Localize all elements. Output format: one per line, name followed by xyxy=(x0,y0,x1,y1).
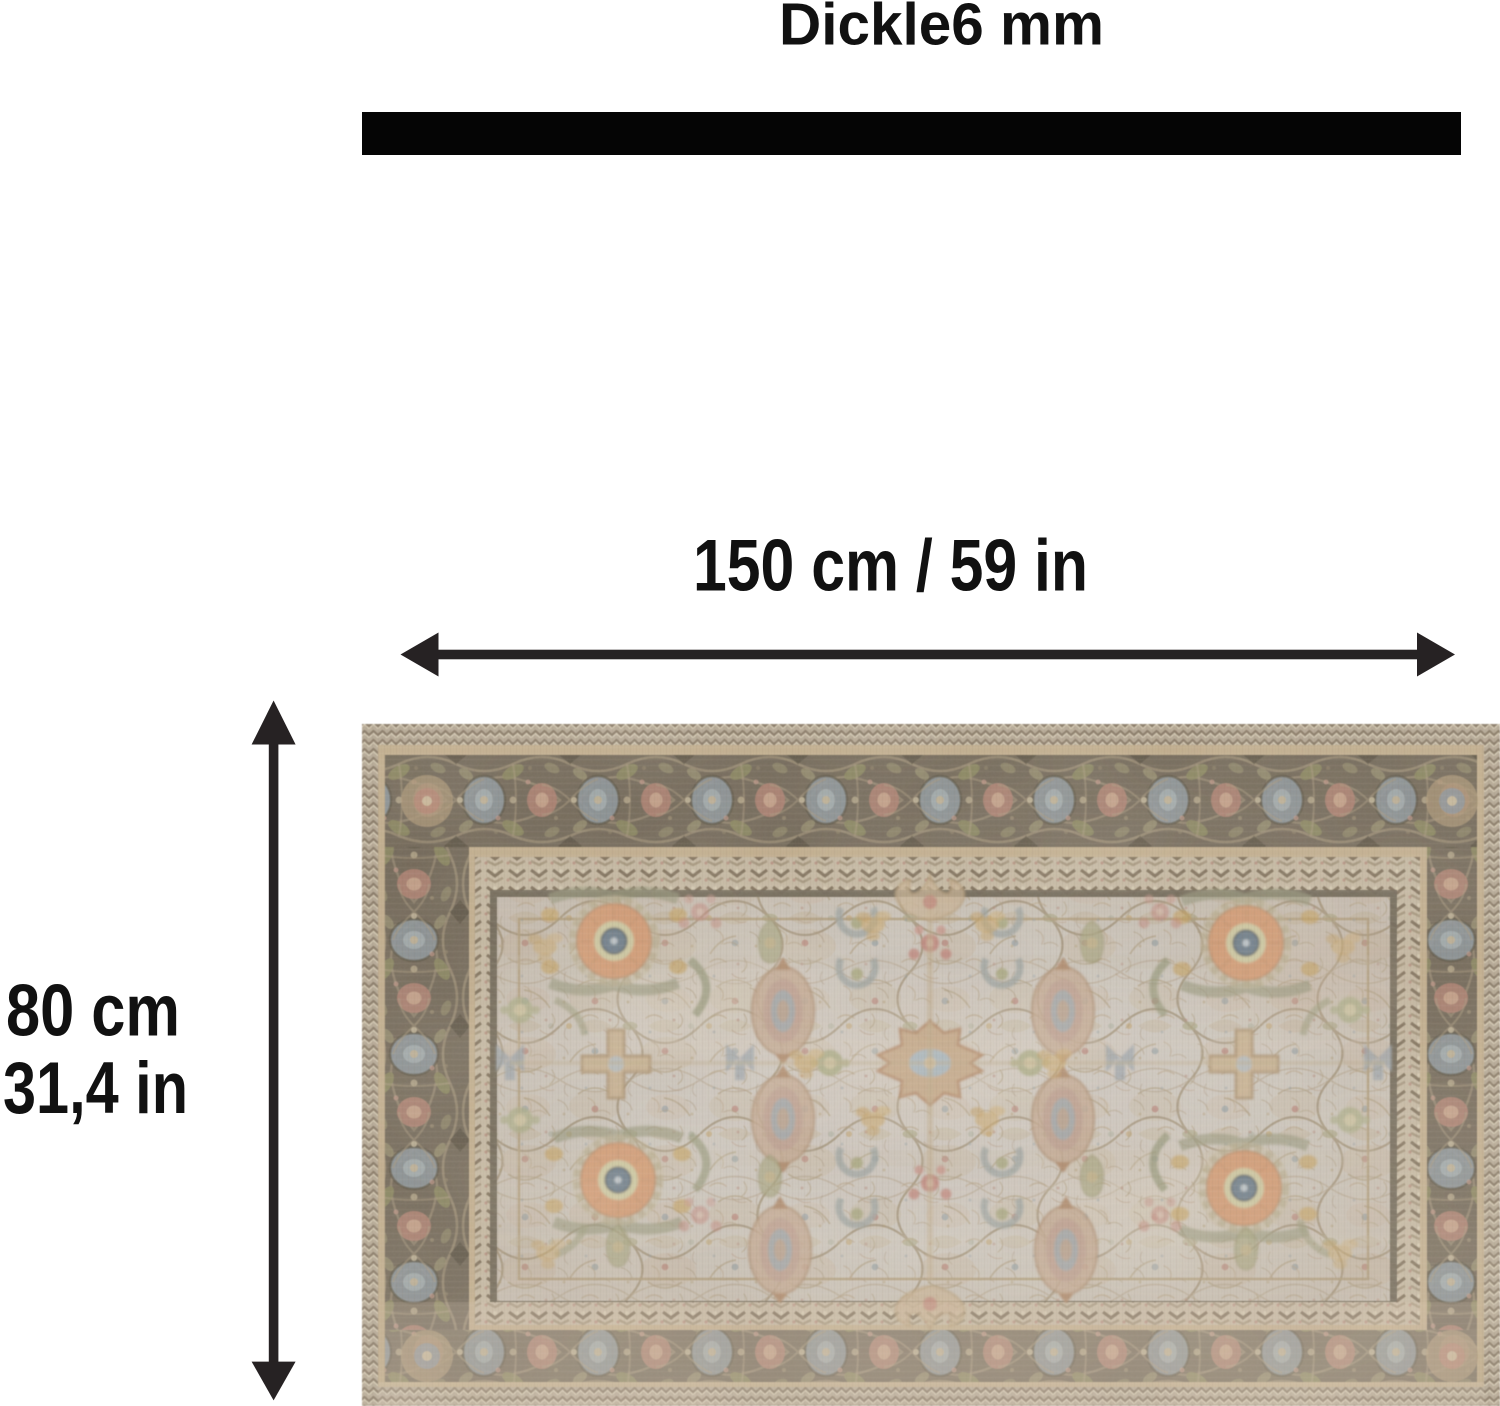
svg-text:31,4 in: 31,4 in xyxy=(3,1048,188,1129)
svg-text:Dickle6 mm: Dickle6 mm xyxy=(779,0,1104,58)
svg-text:150 cm / 59 in: 150 cm / 59 in xyxy=(693,525,1088,606)
svg-text:80 cm: 80 cm xyxy=(6,971,180,1052)
